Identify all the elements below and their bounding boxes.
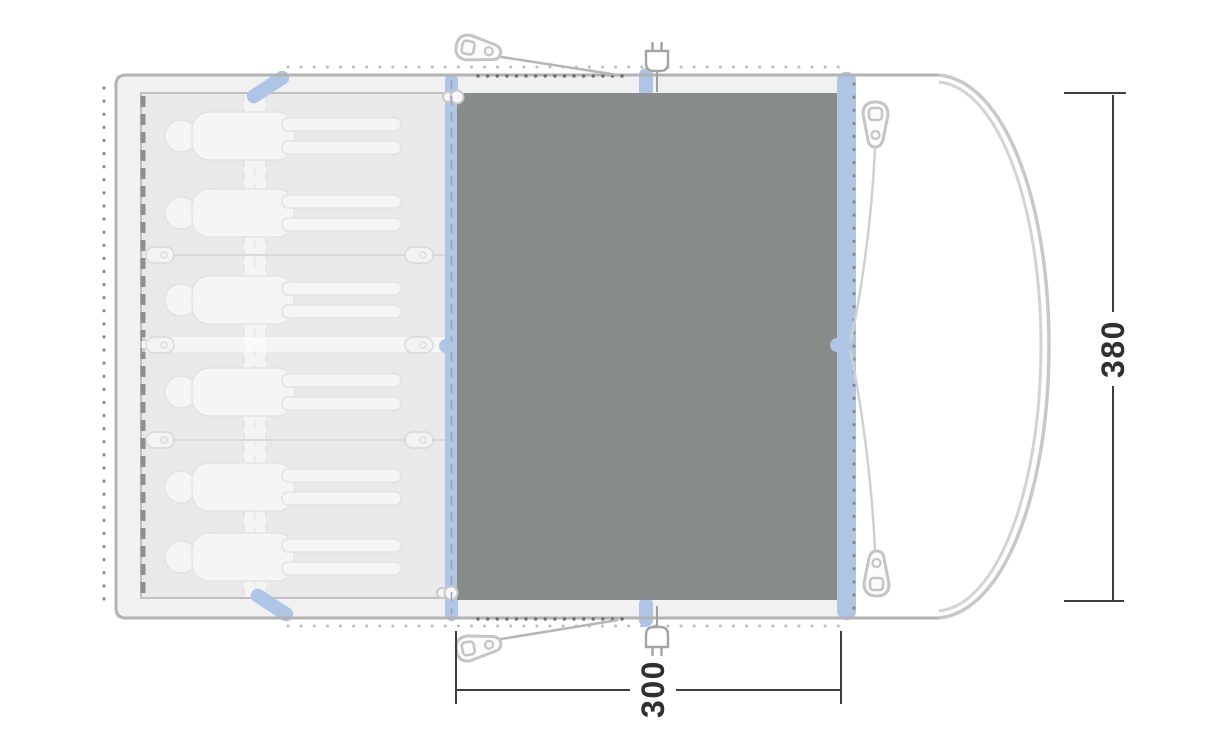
dimension-height-label: 380	[1095, 320, 1131, 378]
tent-peg-icon-top	[454, 33, 503, 65]
dimension-width-label: 300	[635, 660, 671, 718]
toggle-icon	[146, 337, 174, 353]
tent-peg-icon-right-bottom	[864, 551, 889, 596]
tent-peg-icon-right-top	[863, 102, 888, 147]
tent-peg-icon-bottom	[454, 630, 503, 662]
pole-connector-left	[439, 339, 453, 353]
groundsheet	[457, 93, 838, 600]
clip-icon	[442, 91, 464, 104]
floorplan-canvas: 380 300	[0, 0, 1230, 749]
pole-connector-right	[830, 338, 844, 352]
toggle-icon	[405, 337, 433, 353]
tent-floorplan-diagram: 380 300	[0, 0, 1230, 749]
toggle-icon	[146, 247, 174, 263]
toggle-icon	[405, 247, 433, 263]
toggle-icon	[146, 432, 174, 448]
pole-icon-center-bottom	[639, 597, 653, 627]
front-porch	[856, 75, 1049, 618]
clip-icon	[436, 587, 458, 600]
toggle-icon	[405, 432, 433, 448]
